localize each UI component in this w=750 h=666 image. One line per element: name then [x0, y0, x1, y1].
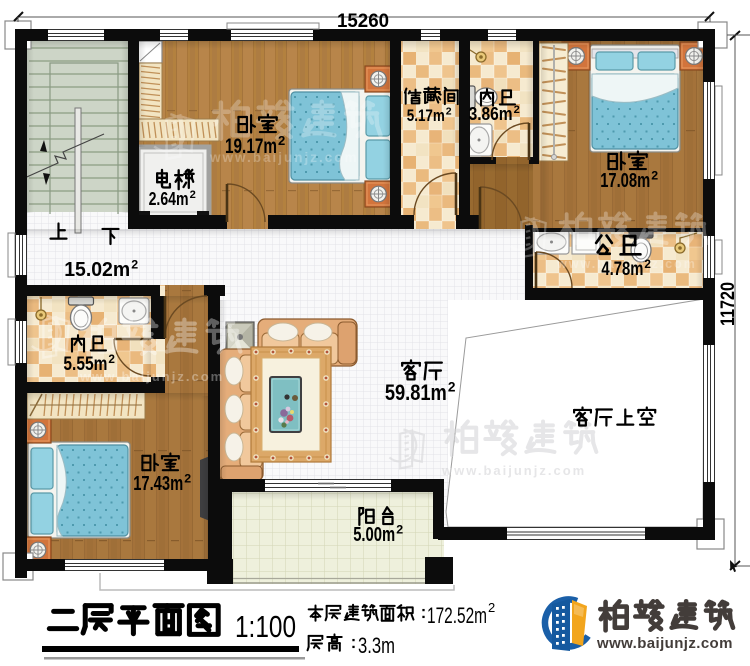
svg-text:3.3m: 3.3m — [358, 633, 395, 658]
svg-text:2: 2 — [190, 189, 196, 201]
svg-text:2: 2 — [514, 104, 520, 116]
svg-text:2: 2 — [651, 168, 658, 182]
svg-text:2: 2 — [108, 353, 115, 366]
svg-text:2: 2 — [184, 471, 191, 485]
svg-text:1:100: 1:100 — [235, 609, 296, 644]
svg-text:5.17m: 5.17m — [407, 106, 445, 125]
svg-text:17.08m: 17.08m — [600, 170, 650, 192]
svg-text:2: 2 — [278, 133, 285, 148]
svg-text:172.52m: 172.52m — [427, 603, 487, 628]
svg-text:15.02m: 15.02m — [64, 259, 130, 281]
svg-text:17.43m: 17.43m — [133, 473, 183, 495]
svg-text:2: 2 — [644, 258, 651, 271]
svg-text:2.64m: 2.64m — [149, 189, 189, 209]
svg-text:5.55m: 5.55m — [63, 354, 107, 375]
svg-text:19.17m: 19.17m — [225, 135, 277, 158]
svg-text:2: 2 — [396, 522, 403, 536]
svg-text:2: 2 — [448, 380, 456, 395]
svg-text:4.78m: 4.78m — [601, 259, 643, 280]
svg-text:www.baijunjz.com: www.baijunjz.com — [596, 635, 733, 652]
svg-text:5.00m: 5.00m — [353, 524, 395, 546]
svg-text:2: 2 — [446, 106, 452, 118]
svg-text:www.baijunjz.com: www.baijunjz.com — [441, 463, 586, 478]
svg-text:3.86m: 3.86m — [469, 104, 513, 124]
svg-text:11720: 11720 — [718, 282, 739, 326]
svg-text:59.81m: 59.81m — [385, 380, 447, 405]
svg-text:15260: 15260 — [337, 11, 389, 32]
svg-text:2: 2 — [131, 257, 138, 271]
svg-text:2: 2 — [488, 600, 495, 615]
